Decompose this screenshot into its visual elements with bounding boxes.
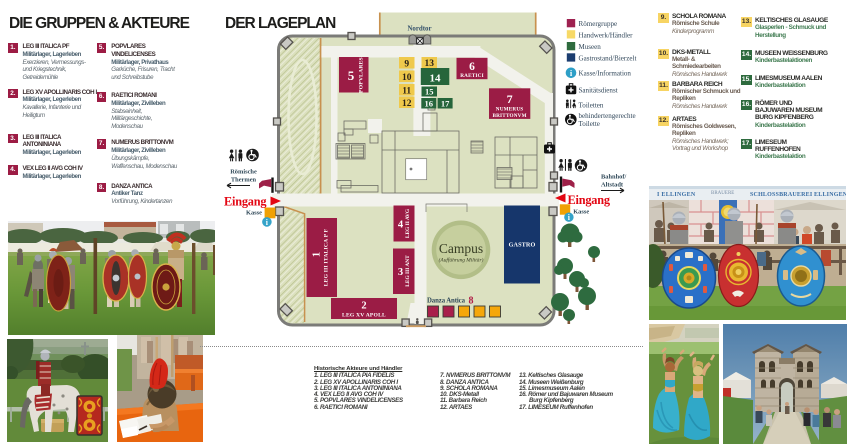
svg-text:Thermen: Thermen [231,177,257,184]
svg-text:10: 10 [402,73,412,83]
svg-text:4: 4 [398,220,404,231]
svg-text:LEG XV APOLL: LEG XV APOLL [342,313,386,319]
svg-text:Bahnhof/: Bahnhof/ [601,174,626,181]
svg-text:3: 3 [398,267,403,278]
svg-text:11: 11 [402,86,411,96]
svg-text:Kasse: Kasse [573,208,589,215]
svg-text:1: 1 [311,252,323,258]
svg-text:NUMERUS: NUMERUS [496,106,524,112]
svg-text:BRITTONVM: BRITTONVM [492,113,526,119]
svg-text:15: 15 [425,87,434,97]
svg-text:6: 6 [469,61,475,73]
svg-text:Römische: Römische [230,169,257,176]
svg-text:Campus: Campus [439,241,483,256]
svg-text:Kasse/Information: Kasse/Information [579,70,632,78]
svg-text:Kasse: Kasse [246,210,262,217]
svg-text:SCHLOSSBRAUEREI ELLINGEN: SCHLOSSBRAUEREI ELLINGEN [750,192,846,198]
svg-text:LEG III ANT: LEG III ANT [405,255,411,287]
svg-text:BRAUERE: BRAUERE [711,191,734,196]
svg-text:Römergruppe: Römergruppe [579,20,618,28]
svg-text:Gastrostand/Bierzelt: Gastrostand/Bierzelt [579,54,637,62]
svg-text:Eingang: Eingang [224,195,267,209]
svg-text:9: 9 [404,59,409,69]
svg-text:2: 2 [361,301,366,312]
svg-text:Altstadt: Altstadt [601,182,624,189]
svg-text:behindertengerechte: behindertengerechte [579,112,636,120]
svg-text:Danza Antica: Danza Antica [427,298,466,305]
svg-text:17: 17 [441,99,450,109]
svg-text:13: 13 [424,59,434,69]
svg-text:14: 14 [430,73,442,85]
svg-text:16: 16 [425,99,434,109]
svg-text:12: 12 [402,99,412,109]
svg-text:POPVLARES: POPVLARES [359,57,365,93]
svg-text:7: 7 [507,92,513,106]
svg-text:RAETICI: RAETICI [460,73,484,79]
svg-text:LEG III ITALICA P F: LEG III ITALICA P F [324,228,330,286]
svg-text:Toiletten: Toiletten [579,102,604,110]
svg-text:Handwerk/Händler: Handwerk/Händler [579,31,634,39]
svg-text:Nordtor: Nordtor [407,26,431,33]
svg-text:GASTRO: GASTRO [509,242,536,249]
svg-text:LEG II AVG: LEG II AVG [405,208,411,238]
svg-text:Toilette: Toilette [579,120,600,128]
svg-text:8: 8 [469,296,474,307]
svg-text:Sanitätsdienst: Sanitätsdienst [579,86,618,94]
svg-text:(Aufführung Militär): (Aufführung Militär) [439,257,484,264]
svg-text:Museen: Museen [579,43,602,51]
svg-text:Eingang: Eingang [568,193,611,207]
svg-text:5: 5 [348,68,355,83]
svg-text:I ELLINGEN: I ELLINGEN [657,192,696,198]
